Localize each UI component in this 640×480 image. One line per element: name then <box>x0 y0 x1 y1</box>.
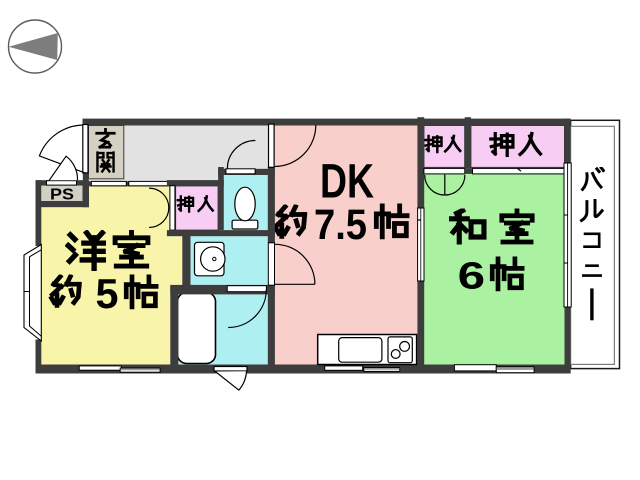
svg-text:7.5: 7.5 <box>314 201 367 249</box>
svg-text:PS: PS <box>50 187 74 204</box>
svg-text:6: 6 <box>458 256 486 298</box>
svg-text:5: 5 <box>96 270 119 317</box>
